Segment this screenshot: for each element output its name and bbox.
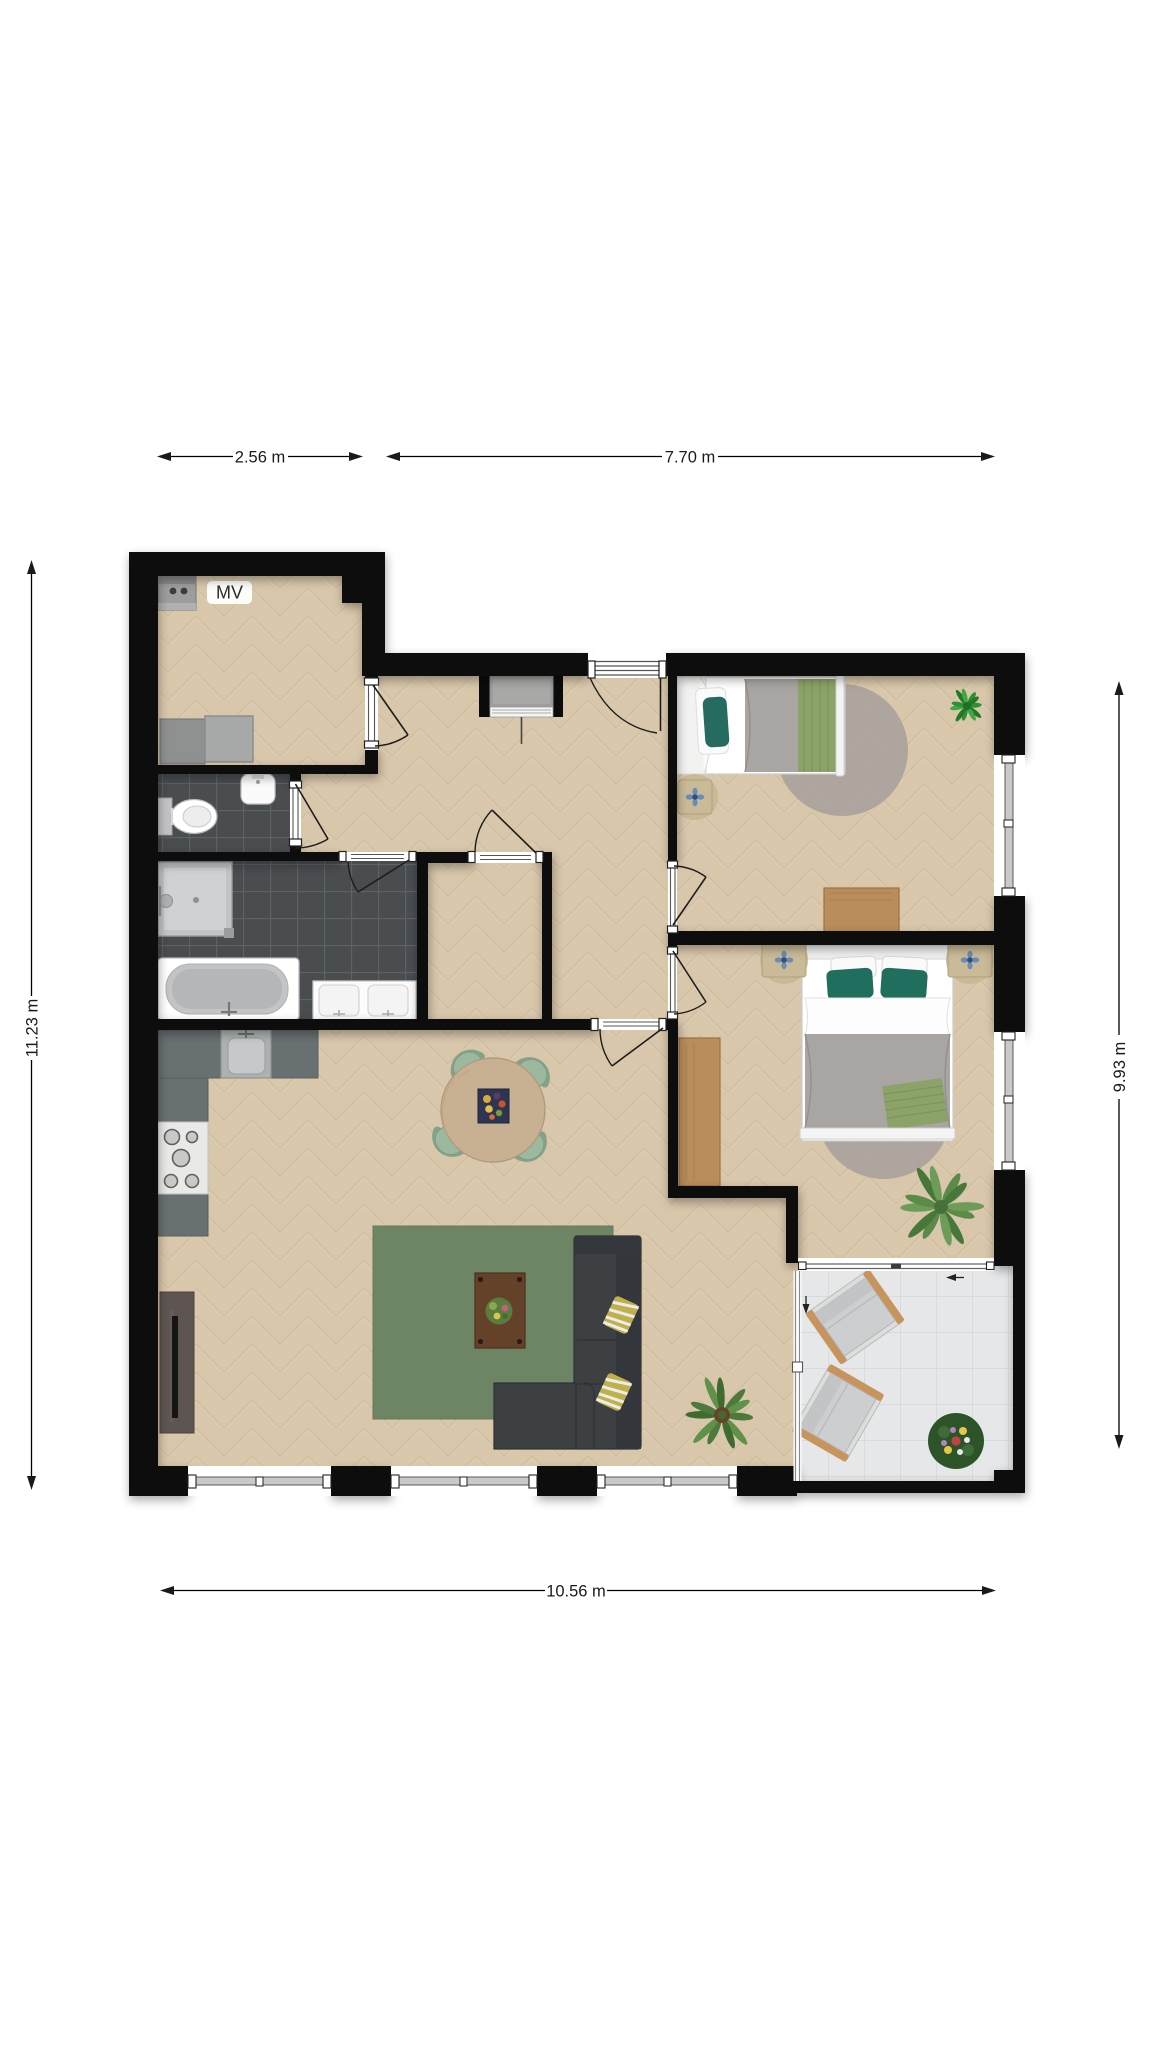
svg-text:7.70 m: 7.70 m (665, 449, 715, 467)
svg-text:11.23 m: 11.23 m (24, 999, 42, 1057)
svg-text:2.56 m: 2.56 m (235, 449, 285, 467)
svg-text:9.93 m: 9.93 m (1111, 1042, 1129, 1092)
svg-text:MV: MV (216, 583, 243, 603)
svg-text:10.56 m: 10.56 m (546, 1583, 606, 1601)
